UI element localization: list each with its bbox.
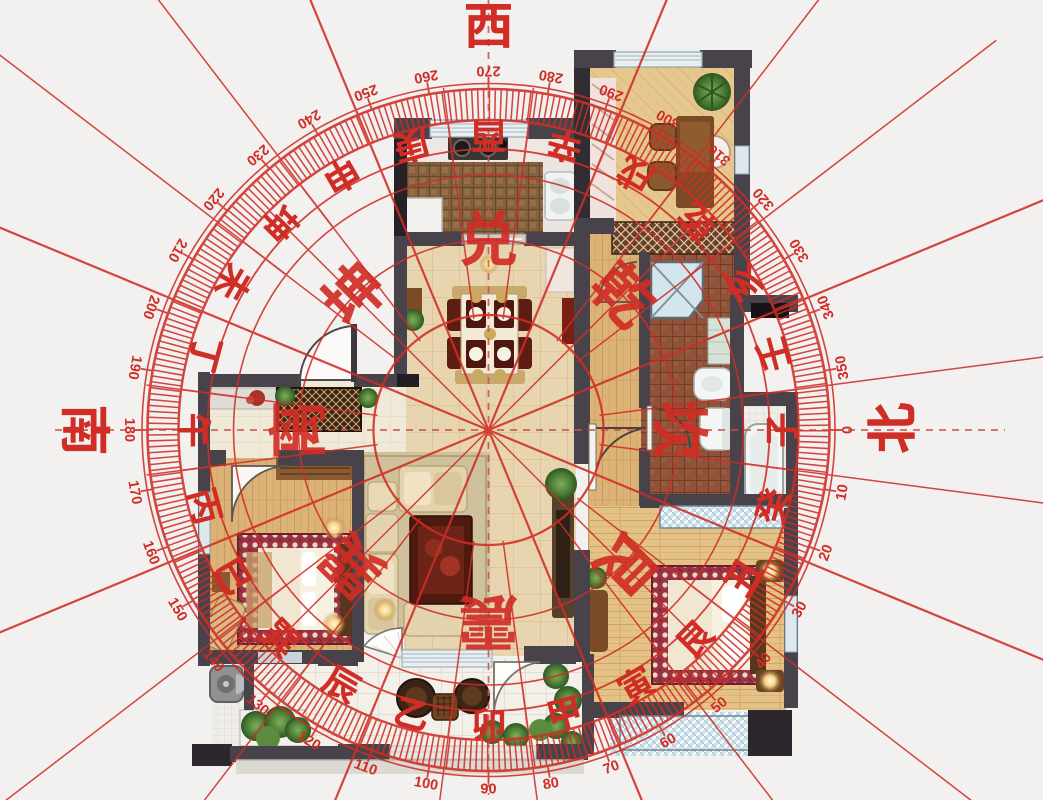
- svg-text:90: 90: [480, 782, 496, 798]
- svg-text:10: 10: [833, 483, 852, 502]
- svg-text:0: 0: [840, 426, 856, 434]
- svg-text:80: 80: [542, 775, 561, 794]
- svg-text:180: 180: [121, 418, 137, 442]
- svg-text:270: 270: [476, 63, 500, 79]
